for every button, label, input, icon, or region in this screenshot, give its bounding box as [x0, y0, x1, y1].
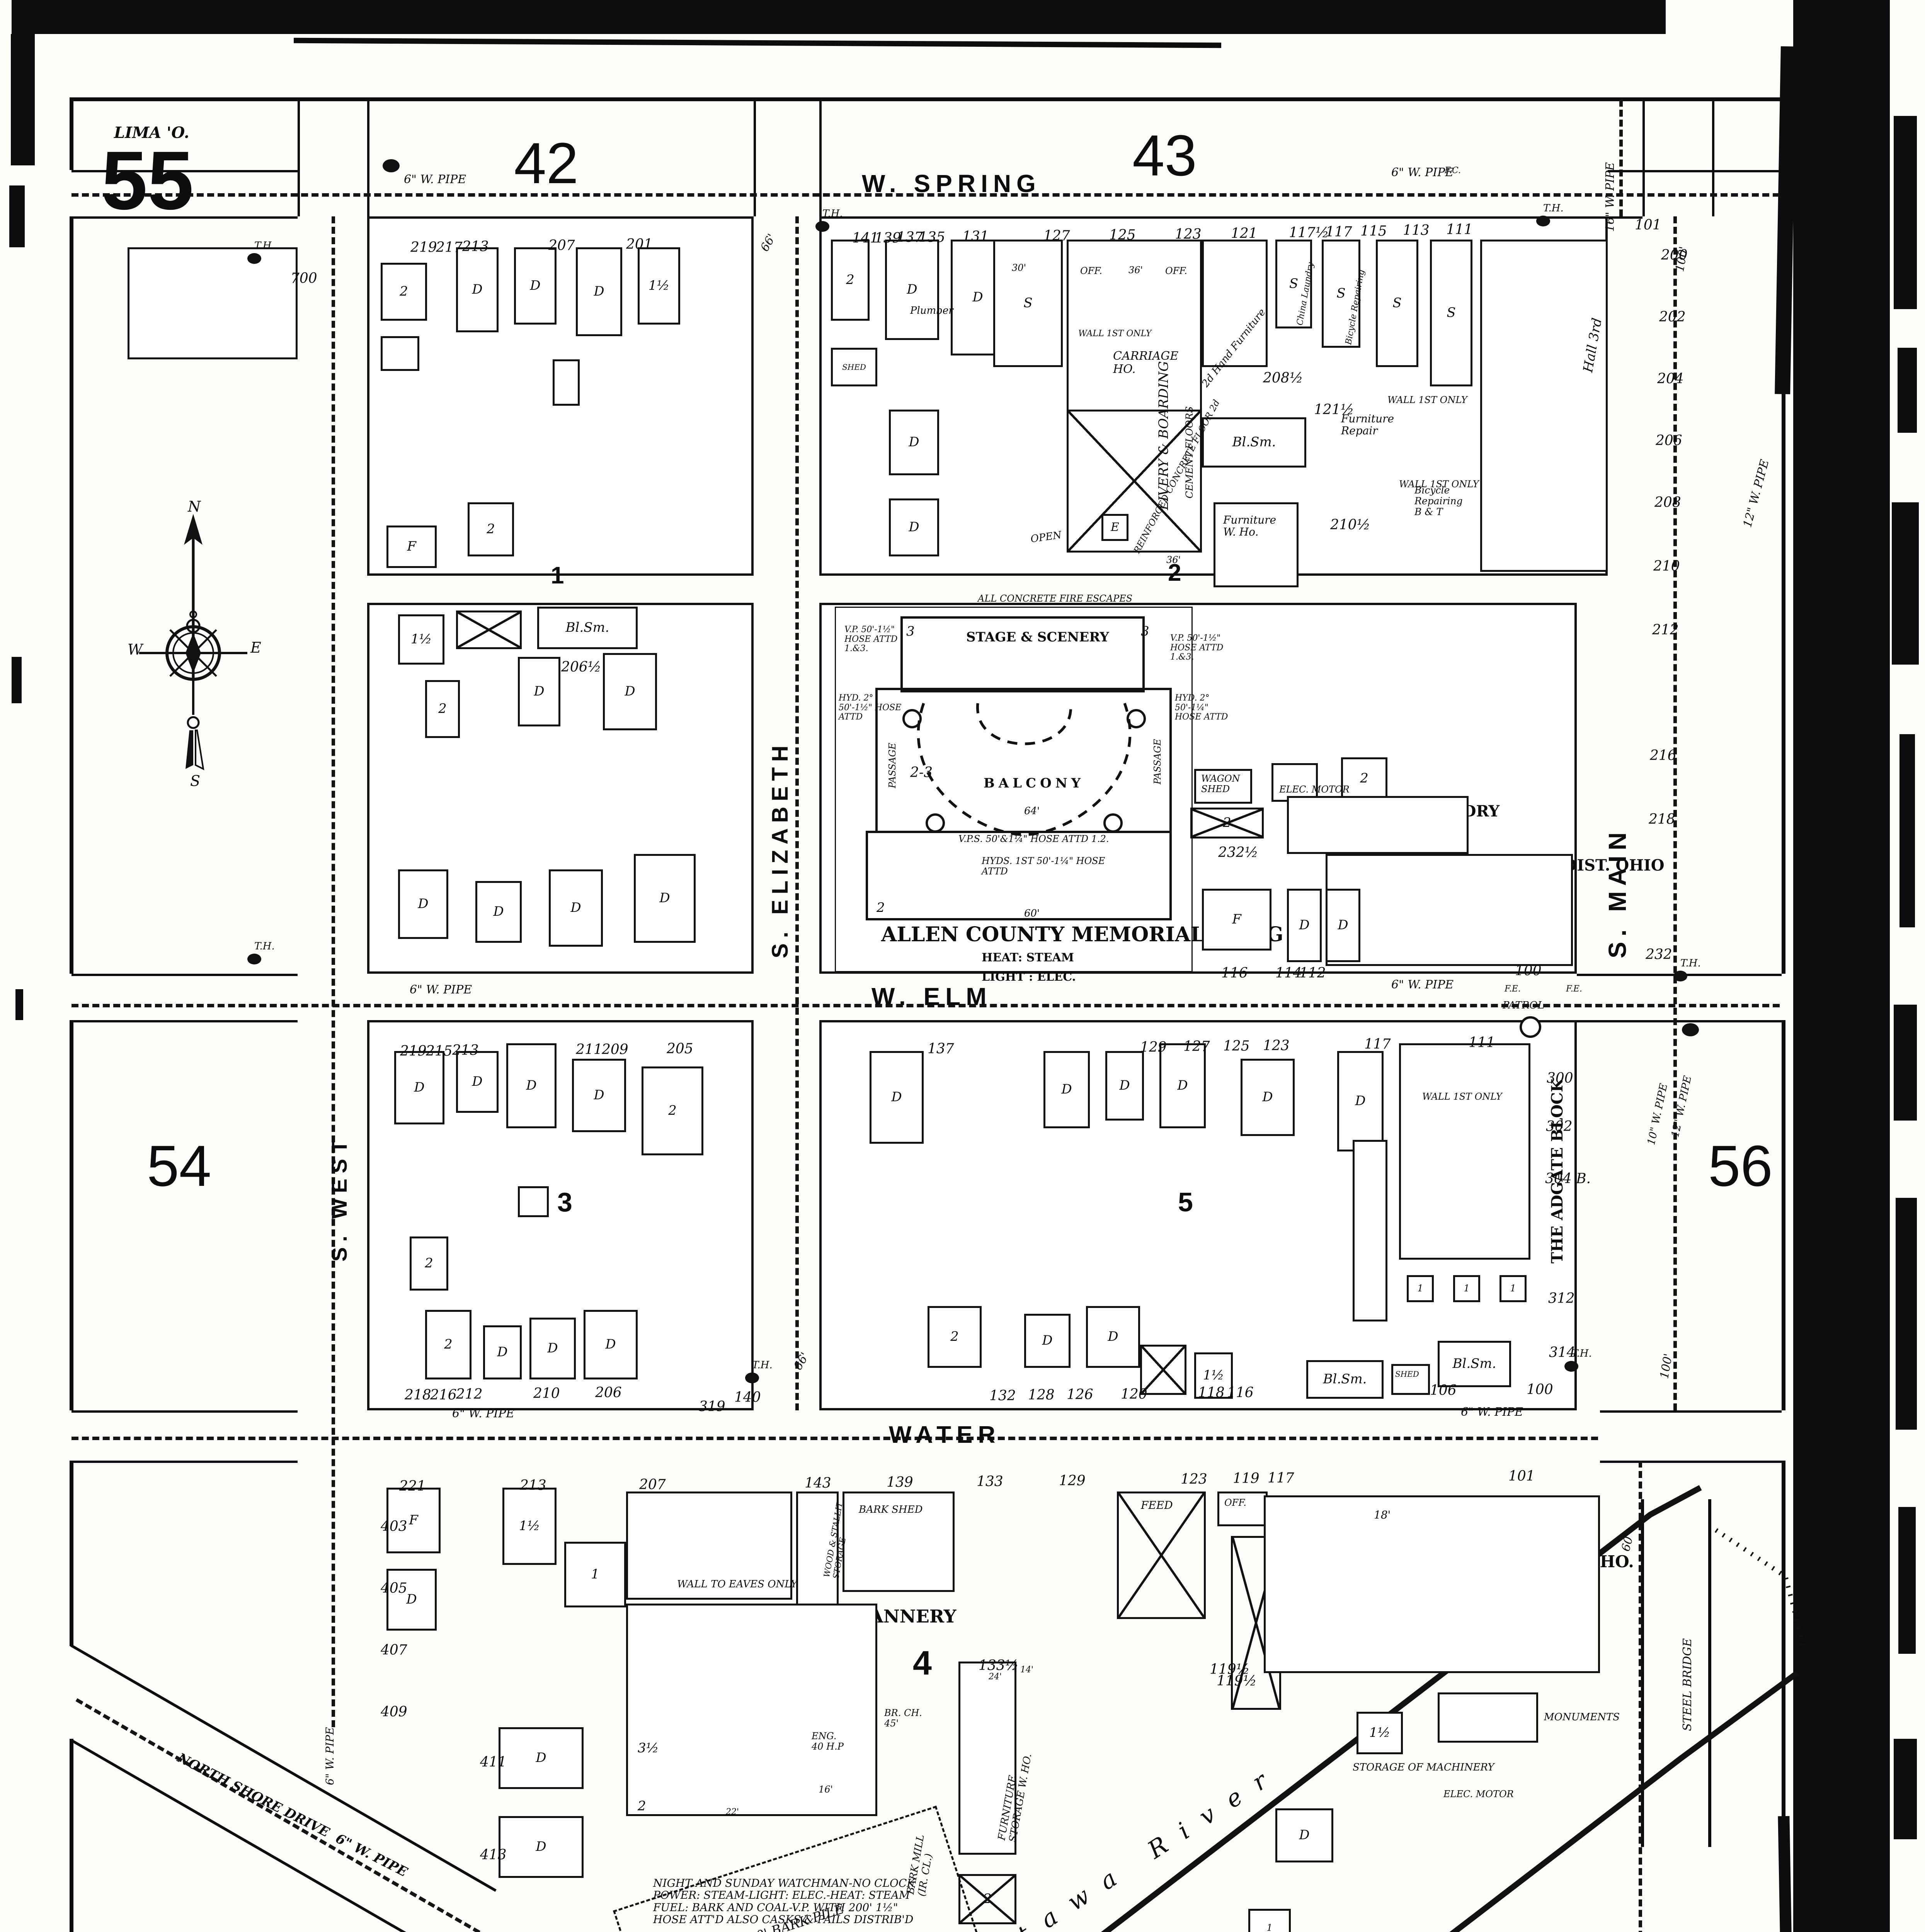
- th-dot: [1536, 216, 1550, 226]
- th-label: T.H.: [254, 940, 275, 952]
- th-marker: T.H.: [247, 253, 261, 264]
- th-label: T.H.: [1571, 1348, 1592, 1359]
- th-label: T.H.: [1543, 202, 1564, 214]
- th-dot: [1564, 1361, 1578, 1372]
- th-label: T.H.: [1680, 957, 1701, 969]
- map-dot: [383, 159, 400, 172]
- th-dot: [247, 954, 261, 964]
- th-marker: T.H.: [247, 954, 261, 964]
- th-marker: T.H.: [745, 1372, 759, 1383]
- th-label: T.H.: [822, 208, 843, 219]
- map-dot: [1682, 1023, 1699, 1036]
- th-marker: T.H.: [1673, 971, 1687, 981]
- sanborn-map-sheet: ALLEN COUNTY MEMORIAL BL'DG HEAT: STEAM …: [0, 0, 1925, 1932]
- th-dot: [247, 253, 261, 264]
- th-label: T.H.: [254, 240, 275, 252]
- th-dot: [815, 221, 829, 232]
- th-label: T.H.: [752, 1359, 773, 1371]
- th-marker: T.H.: [1564, 1361, 1578, 1372]
- markers-layer: T.H.T.H.T.H.T.H.T.H.T.H.T.H.: [0, 0, 1925, 1932]
- th-dot: [1673, 971, 1687, 981]
- th-marker: T.H.: [1536, 216, 1550, 226]
- th-dot: [745, 1372, 759, 1383]
- th-marker: T.H.: [815, 221, 829, 232]
